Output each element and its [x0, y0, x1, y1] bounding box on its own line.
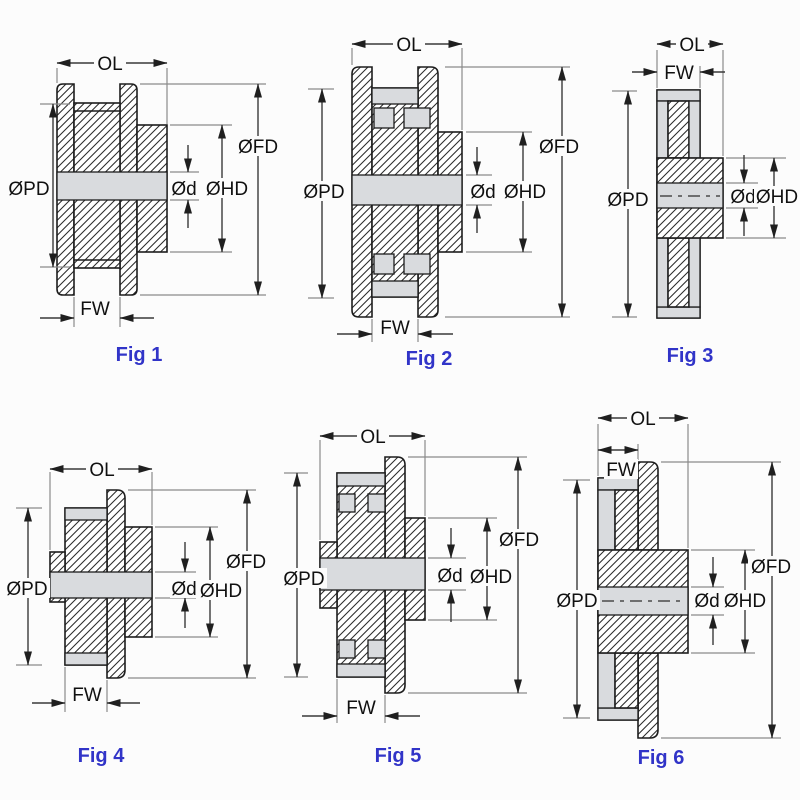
dim-label-hd: ØHD — [724, 591, 766, 612]
rim-web — [615, 653, 638, 708]
dim-label-pd: ØPD — [607, 190, 648, 211]
dim-label-d: Ød — [171, 179, 196, 200]
dim-label-fw: FW — [380, 318, 410, 339]
fig4-pulley-cross-section — [50, 490, 152, 678]
dim-label-fd: ØFD — [499, 530, 539, 551]
dim-label-ol: OL — [89, 460, 114, 481]
bore — [50, 572, 152, 598]
bore — [57, 172, 167, 200]
fig3-pulley-cross-section — [657, 90, 723, 318]
dim-label-hd: ØHD — [470, 567, 512, 588]
groove-recess — [368, 640, 385, 658]
rim-cap-bottom — [657, 307, 700, 318]
rim-web — [615, 490, 638, 550]
rim-cap-top — [657, 90, 700, 101]
dim-label-ol: OL — [679, 35, 704, 56]
dim-label-ol: OL — [630, 409, 655, 430]
fig6-pulley-cross-section — [598, 462, 688, 738]
figure-5: OL ØPD ØFD ØHD Ød FW Fig 5 — [280, 415, 545, 775]
dim-label-fw: FW — [72, 685, 102, 706]
belt-land-bottom — [65, 653, 107, 665]
rim-web — [668, 238, 689, 307]
dim-label-d: Ød — [171, 579, 196, 600]
flange-right-upper — [638, 462, 658, 550]
dim-label-fd: ØFD — [238, 137, 278, 158]
dim-label-d: Ød — [730, 187, 755, 208]
dim-label-hd: ØHD — [200, 581, 242, 602]
rim-recess — [598, 653, 615, 708]
figure-1: OL ØPD ØFD ØHD Ød FW Fig 1 — [0, 30, 285, 375]
dim-label-ol: OL — [97, 54, 122, 75]
figure-caption: Fig 4 — [78, 745, 126, 767]
belt-land-bottom — [372, 281, 418, 297]
pulley-dimension-sheet: OL ØPD ØFD ØHD Ød FW Fig 1 — [0, 0, 800, 800]
figure-3: OL FW ØPD Ød ØHD Fig 3 — [585, 25, 800, 375]
figure-caption: Fig 2 — [406, 348, 453, 370]
dim-label-hd: ØHD — [504, 182, 546, 203]
dim-label-d: Ød — [694, 591, 719, 612]
fig2-pulley-cross-section — [352, 67, 462, 317]
flange-right-lower — [638, 653, 658, 738]
groove-recess — [374, 254, 394, 274]
dim-label-pd: ØPD — [556, 591, 597, 612]
dim-label-fd: ØFD — [751, 557, 791, 578]
belt-land-top — [65, 508, 107, 520]
groove-recess — [374, 108, 394, 128]
fig5-pulley-cross-section — [320, 457, 425, 693]
dim-label-pd: ØPD — [283, 569, 324, 590]
bore — [320, 558, 425, 590]
rim-recess — [657, 101, 668, 158]
bore — [352, 175, 462, 205]
rim-recess — [657, 238, 668, 307]
dim-label-hd: ØHD — [756, 187, 798, 208]
dim-label-hd: ØHD — [206, 179, 248, 200]
rim-web — [668, 101, 689, 158]
figure-4: OL ØPD ØFD ØHD Ød FW Fig 4 — [0, 440, 280, 780]
figure-caption: Fig 3 — [667, 345, 714, 367]
groove-recess — [404, 108, 430, 128]
groove-recess — [368, 494, 385, 512]
groove-recess — [339, 640, 355, 658]
dim-label-fw: FW — [606, 460, 636, 481]
dim-label-fw: FW — [80, 299, 110, 320]
dim-label-ol: OL — [396, 35, 421, 56]
belt-land-bottom — [337, 664, 385, 677]
dim-label-pd: ØPD — [303, 182, 344, 203]
dim-label-pd: ØPD — [8, 179, 49, 200]
figure-6: OL FW ØPD ØFD ØHD Ød Fig 6 — [545, 400, 800, 775]
figure-caption: Fig 5 — [375, 745, 422, 767]
dim-label-fw: FW — [664, 63, 694, 84]
dim-label-fd: ØFD — [539, 137, 579, 158]
groove-recess — [404, 254, 430, 274]
groove-recess — [339, 494, 355, 512]
dim-label-fd: ØFD — [226, 552, 266, 573]
fig1-pulley-cross-section — [57, 84, 167, 295]
dim-label-d: Ød — [437, 566, 462, 587]
rim-recess — [689, 101, 700, 158]
rim-recess — [689, 238, 700, 307]
figure-2: OL ØPD ØFD ØHD Ød FW Fig 2 — [285, 20, 585, 375]
dim-label-ol: OL — [360, 427, 385, 448]
figure-caption: Fig 1 — [116, 344, 163, 366]
figure-caption: Fig 6 — [638, 747, 685, 769]
dim-label-d: Ød — [470, 182, 495, 203]
belt-land-top — [372, 88, 418, 104]
dim-label-pd: ØPD — [6, 579, 47, 600]
rim-recess — [598, 490, 615, 550]
dim-label-fw: FW — [346, 698, 376, 719]
rim-cap-bottom — [598, 708, 638, 720]
belt-land-top — [337, 473, 385, 486]
